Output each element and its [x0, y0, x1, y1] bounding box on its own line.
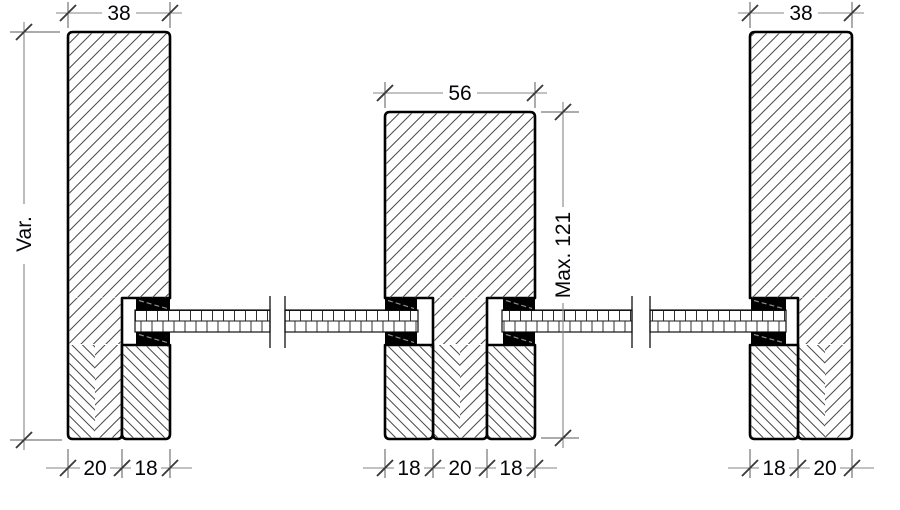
glass-panel-left [135, 296, 418, 348]
gasket [136, 298, 170, 311]
dimension-label: Max. 121 [552, 212, 575, 298]
hatch-area [489, 347, 534, 438]
hatch-area-chevron-left [435, 345, 461, 438]
dimension-label: 18 [134, 457, 157, 480]
section-detail-svg: 38 56 38 Var. Max. 121 [0, 0, 900, 510]
gasket [503, 332, 535, 345]
dimension-label: Var. [13, 216, 36, 252]
dimension-label: 18 [499, 457, 522, 480]
hatch-area-chevron-right [825, 345, 851, 438]
hatch-area [387, 114, 534, 298]
gasket [385, 298, 417, 311]
left-jamb-section [68, 32, 170, 439]
hatch-area-chevron-left [800, 345, 826, 438]
hatch-area [435, 298, 486, 344]
center-mullion-section [385, 112, 535, 439]
dimension-bottom-right: 18 20 [728, 449, 874, 480]
dimension-label: 38 [789, 2, 812, 25]
gasket [503, 298, 535, 311]
hatch-area-chevron-left [70, 345, 96, 438]
hatch-area [752, 347, 797, 438]
dimension-label: 20 [83, 457, 106, 480]
dimension-label: 56 [448, 82, 471, 105]
glass-panel-right-segment-a [502, 310, 632, 332]
dimension-top-right-38: 38 [738, 2, 864, 28]
glass-panel-left-segment-a [135, 310, 270, 332]
dimension-label: 18 [762, 457, 785, 480]
dimension-label: 18 [397, 457, 420, 480]
dimension-bottom-left: 20 18 [46, 449, 192, 480]
gasket [136, 332, 170, 345]
dimension-right-max-121: Max. 121 [541, 102, 579, 448]
dimension-label: 38 [107, 2, 130, 25]
right-jamb-section [750, 32, 852, 439]
technical-drawing-canvas: 38 56 38 Var. Max. 121 [0, 0, 900, 510]
gasket [751, 332, 786, 345]
hatch-area [70, 34, 169, 298]
dimension-bottom-middle: 18 20 18 [363, 449, 557, 480]
dimension-label: 20 [813, 457, 836, 480]
hatch-area [800, 298, 851, 344]
glass-panel-right-segment-b [650, 310, 786, 332]
hatch-area-chevron-right [460, 345, 486, 438]
hatch-area-chevron-right [95, 345, 121, 438]
glass-panel-right [502, 296, 786, 348]
hatch-area [752, 34, 851, 298]
hatch-area [70, 298, 121, 344]
gasket [751, 298, 786, 311]
dimension-top-middle-56: 56 [373, 82, 547, 108]
gasket [385, 332, 417, 345]
dimension-top-left-38: 38 [56, 2, 182, 28]
dimension-label: 20 [448, 457, 471, 480]
hatch-area [124, 347, 169, 438]
glass-panel-left-segment-b [285, 310, 418, 332]
dimension-left-var: Var. [10, 22, 62, 450]
hatch-area [387, 347, 432, 438]
